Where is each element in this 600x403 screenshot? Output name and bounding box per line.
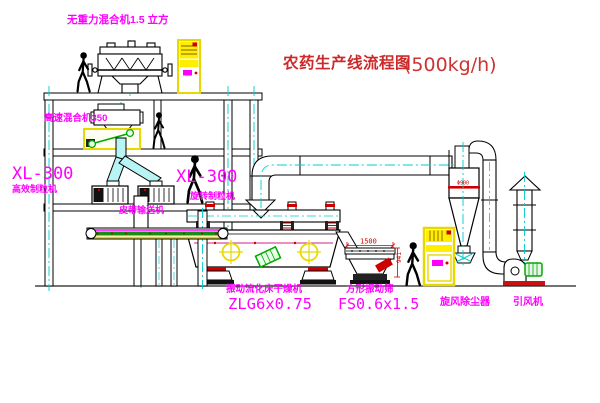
diagram-capacity: (500kg/h) <box>404 54 497 76</box>
high-speed-mixer <box>84 104 143 149</box>
label-screen-model: FS0.6x1.5 <box>338 295 419 313</box>
conveyor-pulley <box>218 229 228 239</box>
worker-figure <box>407 242 420 285</box>
gravity-free-mixer <box>88 41 172 93</box>
granulator-left <box>92 181 128 204</box>
label-high-speed-mixer: 高速混合机350 <box>44 112 107 124</box>
fan-motor <box>525 263 542 276</box>
label-gravity-mixer: 无重力混合机1.5 立方 <box>66 13 169 26</box>
label-granulator-right-type: 旋转制粒机 <box>189 190 235 201</box>
flow-diagram-page: 无重力混合机1.5 立方 农药生产线流程图 (500kg/h) 高速混合机350… <box>0 0 600 403</box>
exhaust-stack <box>510 172 540 268</box>
label-fan: 引风机 <box>513 295 543 308</box>
indicator-light <box>193 43 198 47</box>
vibrating-screen <box>345 242 400 284</box>
control-cabinet-lower <box>424 228 454 285</box>
label-belt-conveyor: 皮带输送机 <box>118 204 164 215</box>
label-granulator-right-model: XL-300 <box>176 167 237 187</box>
display-panel <box>432 260 443 266</box>
label-dryer-model: ZLG6x0.75 <box>228 295 312 313</box>
label-granulator-left-model: XL-300 <box>12 164 73 184</box>
dim-text-cyclone: Φ900 <box>457 181 469 187</box>
support-column-front <box>198 208 207 289</box>
control-cabinet-upper <box>178 40 200 93</box>
label-cyclone: 旋风除尘器 <box>439 295 491 308</box>
display-panel <box>183 70 192 76</box>
dryer-feet <box>198 267 336 285</box>
induced-draft-fan <box>503 259 545 286</box>
dim-text-941: 941 <box>396 252 403 263</box>
downcomer-duct <box>481 160 512 274</box>
label-granulator-left-type: 高效制粒机 <box>12 183 57 194</box>
indicator-light <box>447 231 452 235</box>
fluid-bed-dryer <box>186 202 358 285</box>
conveyor-pulley <box>86 229 96 239</box>
fan-base <box>503 281 545 286</box>
exhaust-duct <box>246 156 460 214</box>
diagram-title: 农药生产线流程图 <box>282 53 411 72</box>
label-dryer-type: 振动流化床干燥机 <box>226 283 303 295</box>
flow-diagram: 无重力混合机1.5 立方 农药生产线流程图 (500kg/h) 高速混合机350… <box>0 0 600 403</box>
conveyor-legs <box>134 239 177 286</box>
dim-text-1500: 1500 <box>360 238 377 246</box>
label-screen-type: 方形振动筛 <box>346 283 394 295</box>
